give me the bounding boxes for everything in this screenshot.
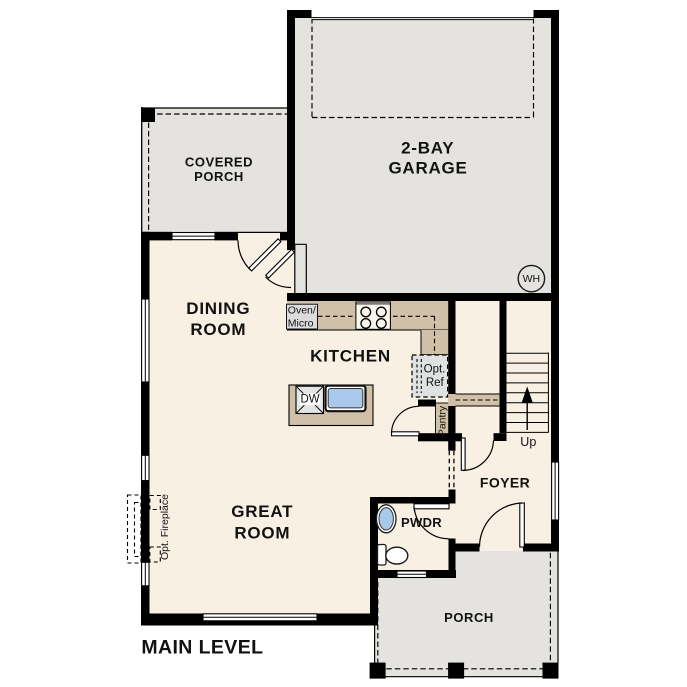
- svg-text:2-BAY: 2-BAY: [401, 138, 454, 157]
- svg-text:Up: Up: [520, 435, 536, 449]
- svg-text:GARAGE: GARAGE: [388, 159, 467, 178]
- svg-text:MAIN LEVEL: MAIN LEVEL: [141, 636, 263, 658]
- svg-text:DW: DW: [301, 394, 320, 406]
- svg-text:WH: WH: [523, 273, 541, 285]
- svg-text:DINING: DINING: [186, 299, 250, 318]
- svg-text:Opt. Fireplace: Opt. Fireplace: [159, 494, 171, 560]
- svg-text:PORCH: PORCH: [444, 610, 494, 625]
- svg-text:PORCH: PORCH: [194, 169, 244, 184]
- svg-text:FOYER: FOYER: [480, 474, 530, 490]
- svg-text:KITCHEN: KITCHEN: [310, 347, 391, 366]
- svg-text:Micro: Micro: [288, 317, 314, 329]
- svg-text:Pantry: Pantry: [436, 405, 448, 436]
- svg-text:Oven/: Oven/: [288, 305, 316, 317]
- svg-text:PWDR: PWDR: [401, 515, 442, 530]
- svg-text:ROOM: ROOM: [234, 523, 290, 542]
- svg-text:GREAT: GREAT: [231, 502, 293, 521]
- svg-text:ROOM: ROOM: [190, 320, 246, 339]
- svg-text:Ref: Ref: [426, 377, 445, 389]
- svg-text:Opt.: Opt.: [424, 364, 446, 376]
- svg-text:COVERED: COVERED: [185, 154, 253, 169]
